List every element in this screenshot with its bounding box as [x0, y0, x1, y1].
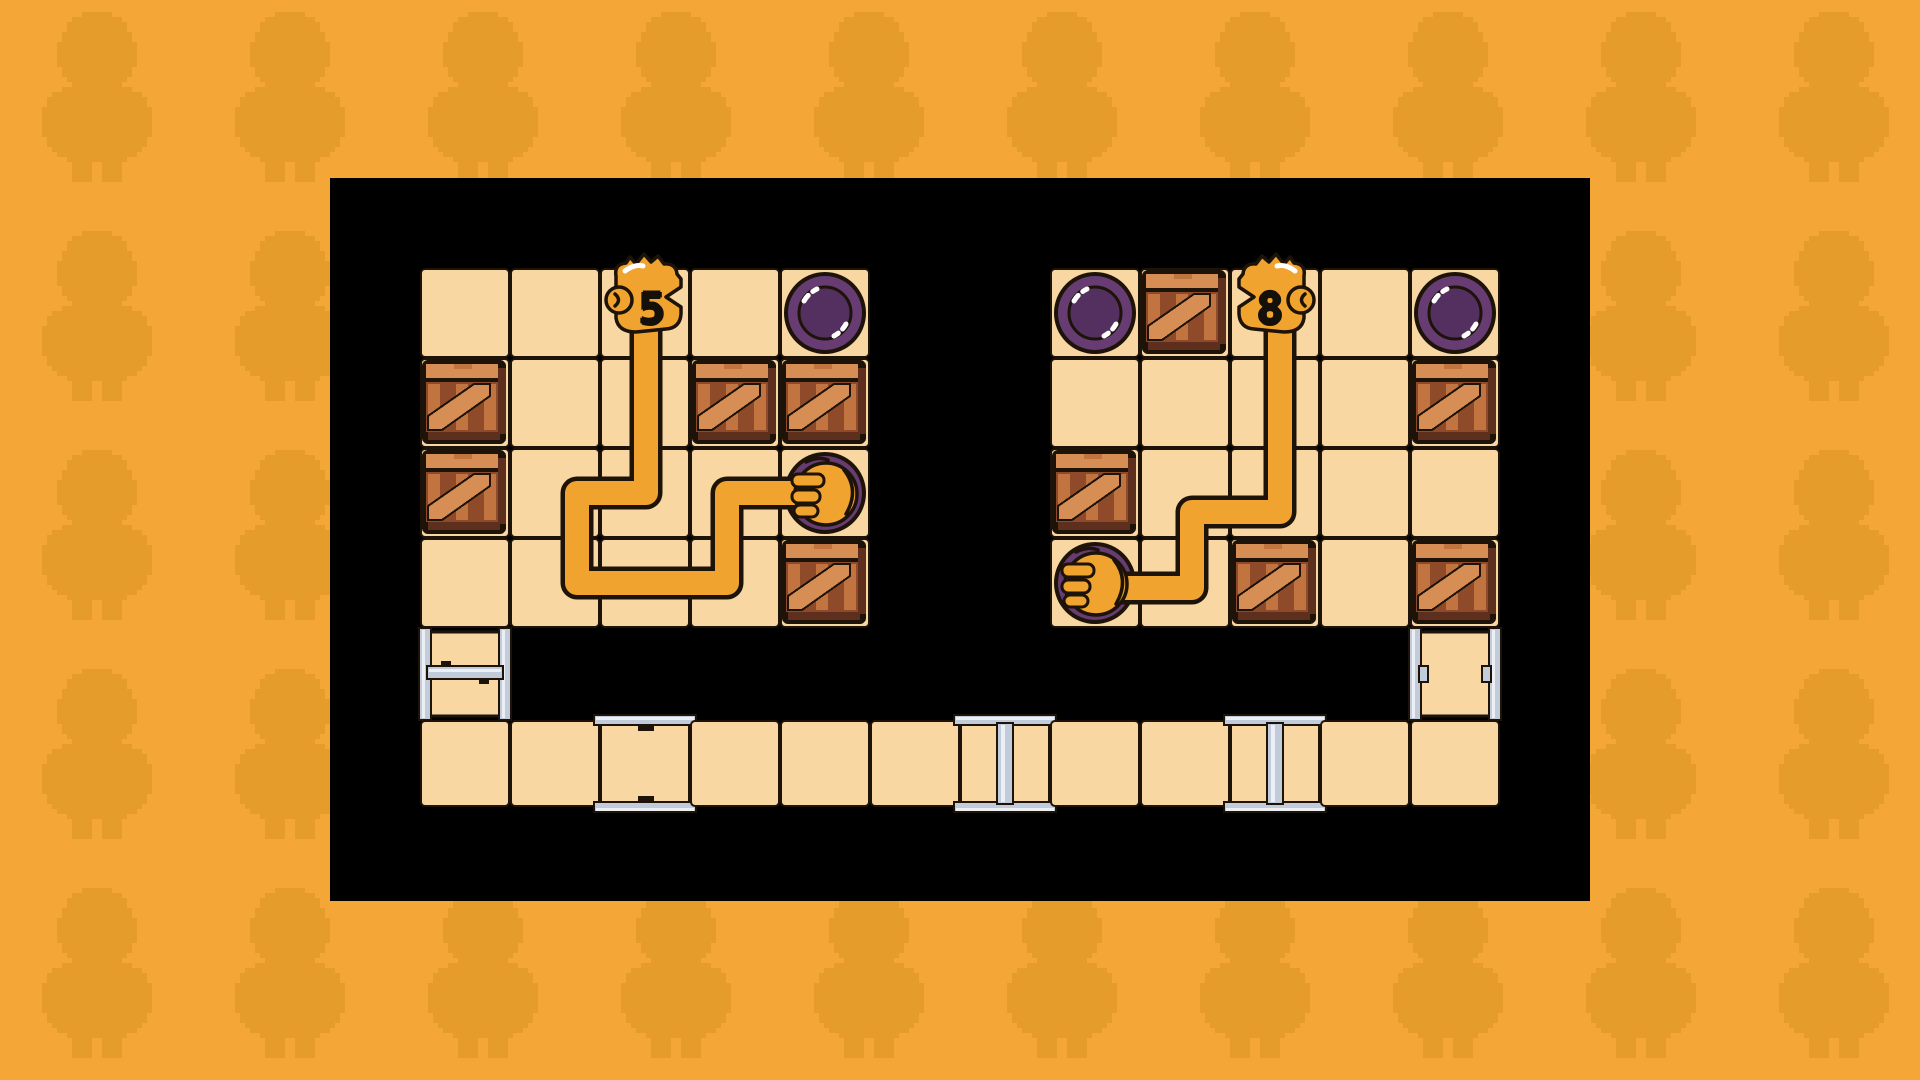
chick-pattern-icon: [1774, 669, 1894, 839]
chick-pattern-icon: [1774, 12, 1894, 182]
chick-pattern-icon: [230, 12, 350, 182]
chick-pattern-icon: [1388, 888, 1508, 1058]
chick-pattern-icon: [1581, 669, 1701, 839]
chick-pattern-icon: [1388, 12, 1508, 182]
game-stage: 58: [0, 0, 1920, 1080]
chick-pattern-icon: [1002, 12, 1122, 182]
chick-pattern-icon: [1581, 888, 1701, 1058]
puzzle-board: [330, 178, 1590, 901]
chick-pattern-icon: [1195, 888, 1315, 1058]
chick-pattern-icon: [616, 12, 736, 182]
chick-pattern-icon: [37, 12, 157, 182]
chick-pattern-icon: [1581, 450, 1701, 620]
chick-pattern-icon: [37, 888, 157, 1058]
chick-pattern-icon: [1774, 231, 1894, 401]
chick-pattern-icon: [37, 231, 157, 401]
chick-pattern-icon: [1195, 12, 1315, 182]
chick-pattern-icon: [423, 12, 543, 182]
chick-pattern-icon: [1774, 450, 1894, 620]
chick-pattern-icon: [809, 888, 929, 1058]
chick-pattern-icon: [37, 669, 157, 839]
chick-pattern-icon: [37, 450, 157, 620]
chick-pattern-icon: [616, 888, 736, 1058]
chick-pattern-icon: [423, 888, 543, 1058]
chick-pattern-icon: [1581, 12, 1701, 182]
chick-pattern-icon: [1002, 888, 1122, 1058]
chick-pattern-icon: [1774, 888, 1894, 1058]
chick-pattern-icon: [1581, 231, 1701, 401]
chick-pattern-icon: [230, 888, 350, 1058]
chick-pattern-icon: [809, 12, 929, 182]
